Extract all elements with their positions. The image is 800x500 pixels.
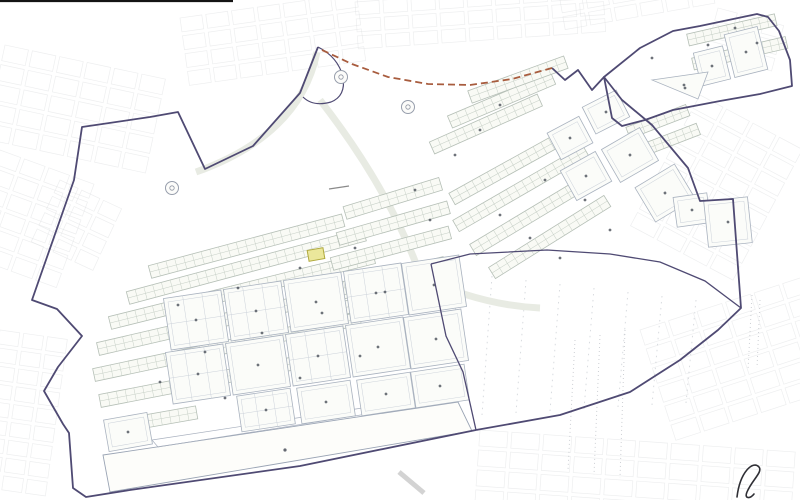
- highlighted-parcel[interactable]: [307, 248, 325, 262]
- internal-boundary-lines: [431, 250, 741, 430]
- urban-plan-map-canvas[interactable]: [0, 0, 800, 500]
- future-phase-dotgrid: [448, 272, 696, 417]
- area-ref-circles: [166, 71, 415, 195]
- plan-map-frame: [0, 0, 800, 500]
